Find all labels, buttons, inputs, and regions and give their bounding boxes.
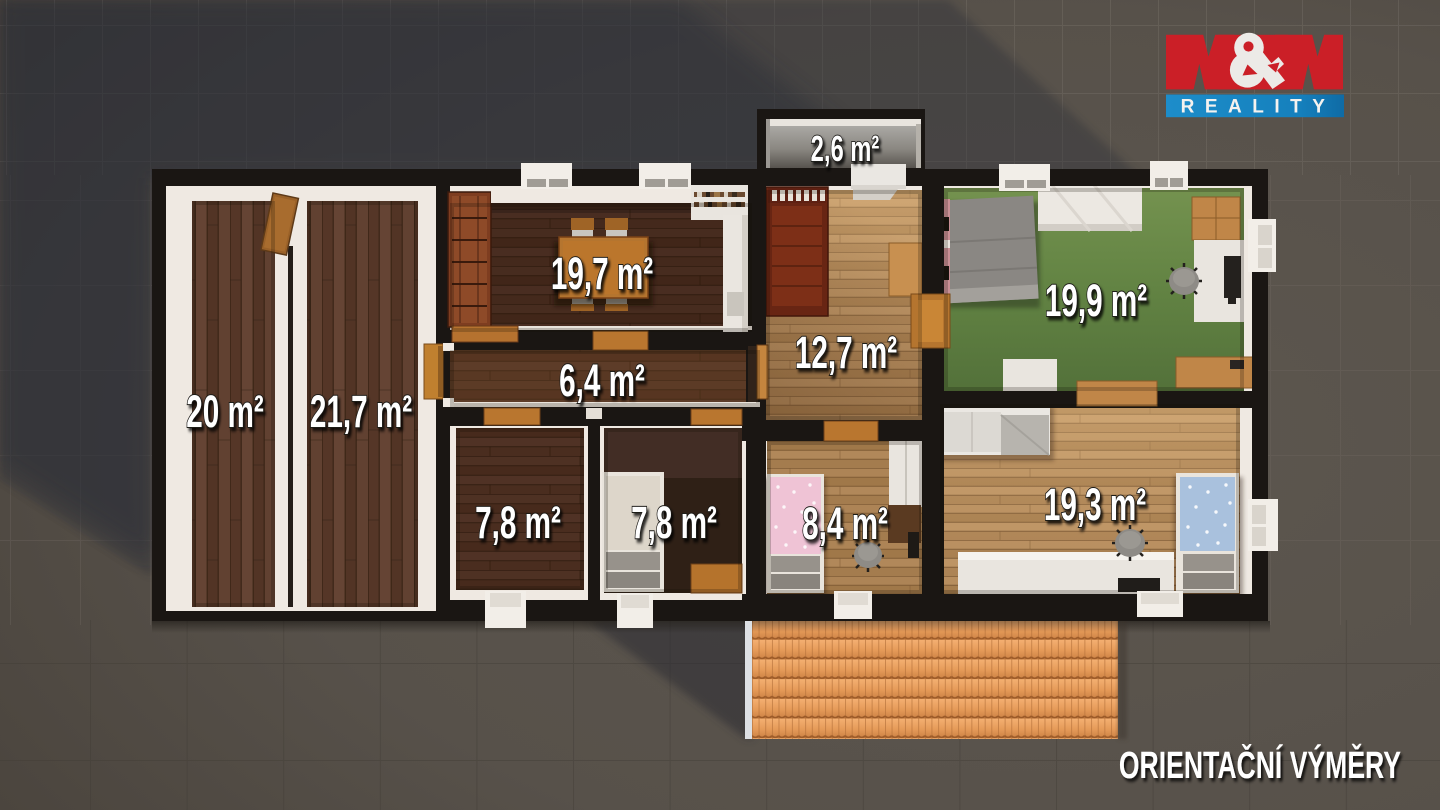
svg-text:21,7 m²: 21,7 m² — [310, 387, 412, 438]
svg-text:7,8 m²: 7,8 m² — [631, 498, 717, 549]
svg-text:19,3 m²: 19,3 m² — [1044, 480, 1146, 531]
svg-text:2,6 m²: 2,6 m² — [811, 129, 880, 169]
svg-text:ORIENTAČNÍ VÝMĚRY: ORIENTAČNÍ VÝMĚRY — [1119, 742, 1401, 786]
svg-text:19,7 m²: 19,7 m² — [551, 249, 653, 300]
svg-text:19,9 m²: 19,9 m² — [1045, 276, 1147, 327]
svg-text:6,4 m²: 6,4 m² — [559, 356, 645, 407]
svg-text:7,8 m²: 7,8 m² — [475, 498, 561, 549]
svg-text:REALITY: REALITY — [1181, 97, 1336, 118]
svg-text:20 m²: 20 m² — [186, 387, 264, 438]
svg-text:8,4 m²: 8,4 m² — [802, 499, 888, 550]
svg-text:12,7 m²: 12,7 m² — [795, 328, 897, 379]
